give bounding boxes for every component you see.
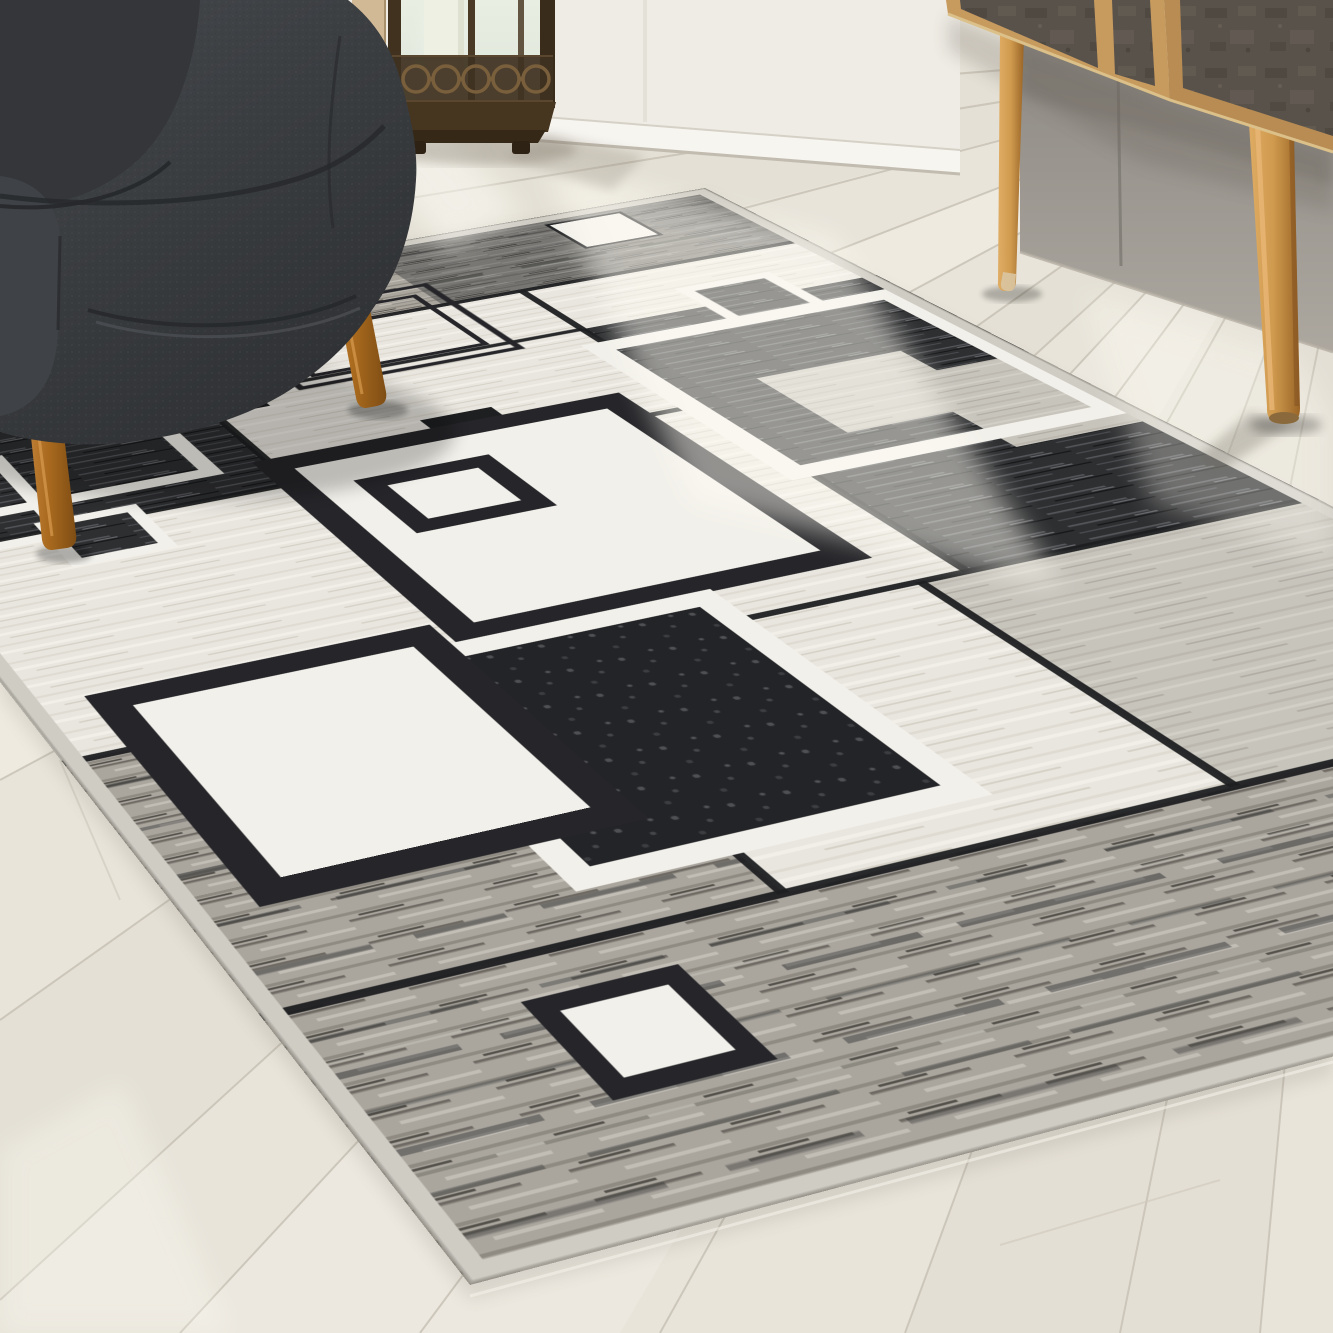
armchair (0, 0, 455, 563)
sun-glare-bottom-left (0, 1082, 232, 1333)
rug-edge-highlight (470, 1062, 1333, 1296)
sideboard-door-panel-mid (1112, 0, 1155, 86)
lantern-foot (512, 141, 530, 154)
lantern-ring-band (392, 56, 553, 102)
living-room-rug-photo: Product photo of a modern geometric area… (0, 0, 1333, 1333)
sideboard-leg-left (998, 34, 1024, 291)
sun-glare-center (545, 165, 1062, 588)
sideboard-leg-right-tip (1269, 412, 1299, 424)
sideboard-leg-left-tip (1001, 272, 1016, 291)
furniture-layer (0, 0, 1333, 1333)
